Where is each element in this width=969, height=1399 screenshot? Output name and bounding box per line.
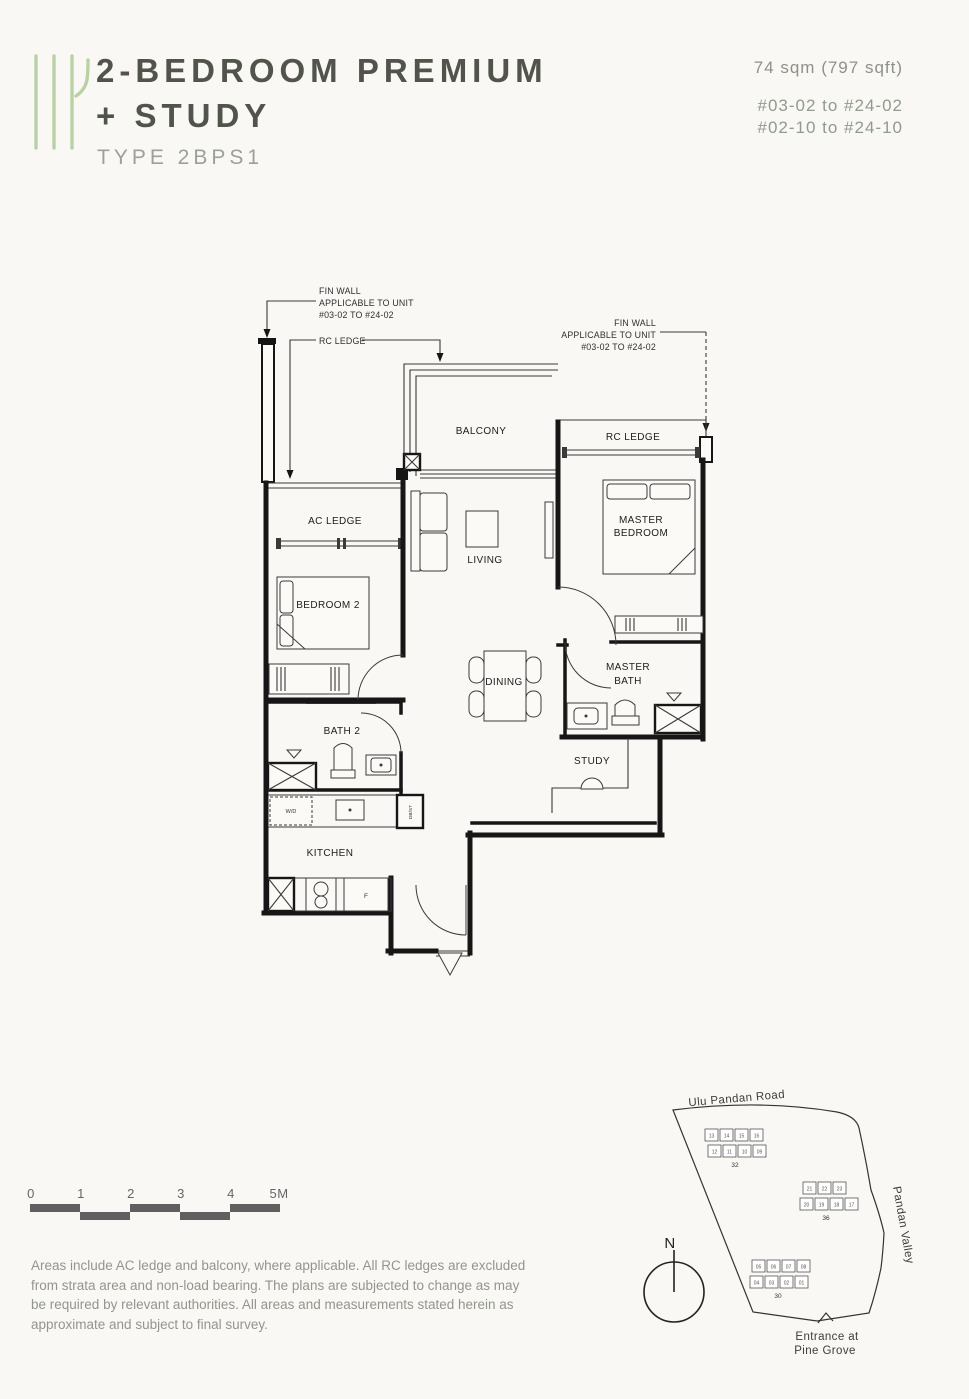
floorplan-drawing: FIN WALL APPLICABLE TO UNIT #03-02 TO #2… [0,0,969,1399]
north-label: N [664,1235,675,1252]
svg-text:13: 13 [709,1134,715,1140]
svg-text:15: 15 [739,1134,745,1140]
column-box [404,454,420,470]
svg-text:14: 14 [724,1134,730,1140]
entrance-label-2: Pine Grove [794,1345,856,1357]
label-master-bath-2: BATH [614,676,642,687]
floorplan-page: 2-BEDROOM PREMIUM + STUDY TYPE 2BPS1 74 … [0,0,969,1399]
svg-text:07: 07 [786,1265,792,1271]
svg-text:02: 02 [784,1281,790,1287]
label-master-bedroom-1: MASTER [619,515,663,526]
svg-text:19: 19 [819,1203,825,1209]
svg-text:18: 18 [834,1203,840,1209]
label-bedroom2: BEDROOM 2 [296,600,360,611]
svg-text:10: 10 [742,1150,748,1156]
label-kitchen: KITCHEN [307,848,354,859]
north-arrow-icon: N [644,1235,704,1322]
scale-tick-3: 3 [177,1186,185,1201]
svg-text:21: 21 [807,1187,813,1193]
svg-text:12: 12 [712,1150,718,1156]
svg-text:20: 20 [804,1203,810,1209]
label-db-st: DB/ST [408,805,414,819]
svg-text:22: 22 [822,1187,828,1193]
label-dining: DINING [485,677,522,688]
svg-text:05: 05 [756,1265,762,1271]
finwall-left-label-2: APPLICABLE TO UNIT [319,298,414,308]
finwall-right-label-3: #03-02 TO #24-02 [581,342,656,352]
cluster-label-32: 32 [731,1162,739,1169]
building-cluster-32: 13 14 15 16 12 11 10 09 32 [705,1129,766,1169]
label-rc-ledge-right: RC LEDGE [606,432,660,443]
svg-text:04: 04 [754,1281,760,1287]
cluster-label-30: 30 [774,1293,782,1300]
disclaimer-line-3: by relevant authorities. All areas and m… [31,1297,514,1332]
label-balcony: BALCONY [456,426,507,437]
svg-text:06: 06 [771,1265,777,1271]
svg-text:16: 16 [754,1134,760,1140]
entrance-label-1: Entrance at [795,1331,859,1343]
finwall-left-label-1: FIN WALL [319,286,361,296]
label-fridge: F [364,893,368,900]
svg-text:08: 08 [801,1265,807,1271]
site-map: Ulu Pandan Road Pandan Valley Entrance a… [644,1089,915,1357]
finwall-left-label-3: #03-02 TO #24-02 [319,310,394,320]
svg-text:03: 03 [769,1281,775,1287]
rc-ledge-left-label: RC LEDGE [319,336,366,346]
svg-text:11: 11 [727,1150,732,1156]
label-living: LIVING [467,555,502,566]
annotation-texts: FIN WALL APPLICABLE TO UNIT #03-02 TO #2… [319,286,656,352]
label-washer-dryer: W/D [286,809,297,815]
svg-text:01: 01 [799,1281,805,1287]
building-cluster-36: 21 22 23 20 19 18 17 36 [800,1182,858,1222]
scale-tick-1: 1 [77,1186,85,1201]
doors [358,587,616,975]
scale-bar: 0 1 2 3 4 5M [27,1186,288,1220]
road-label-right: Pandan Valley [890,1185,915,1264]
scale-tick-5: 5M [269,1186,288,1201]
label-master-bath-1: MASTER [606,662,650,673]
label-ac-ledge: AC LEDGE [308,516,362,527]
svg-text:23: 23 [837,1187,843,1193]
scale-tick-0: 0 [27,1186,35,1201]
label-bath2: BATH 2 [324,726,361,737]
road-label-top: Ulu Pandan Road [688,1089,785,1109]
label-master-bedroom-2: BEDROOM [614,528,668,539]
finwall-right-label-1: FIN WALL [614,318,656,328]
finwall-right-label-2: APPLICABLE TO UNIT [561,330,656,340]
disclaimer-line-4: subject to final survey. [135,1317,268,1332]
svg-text:17: 17 [849,1203,855,1209]
building-cluster-30: 05 06 07 08 04 03 02 01 30 [750,1260,810,1300]
cluster-label-36: 36 [822,1215,830,1222]
disclaimer-text: Areas include AC ledge and balcony, wher… [31,1256,536,1334]
scale-tick-2: 2 [127,1186,135,1201]
scale-tick-4: 4 [227,1186,235,1201]
label-study: STUDY [574,756,610,767]
svg-text:09: 09 [757,1150,763,1156]
